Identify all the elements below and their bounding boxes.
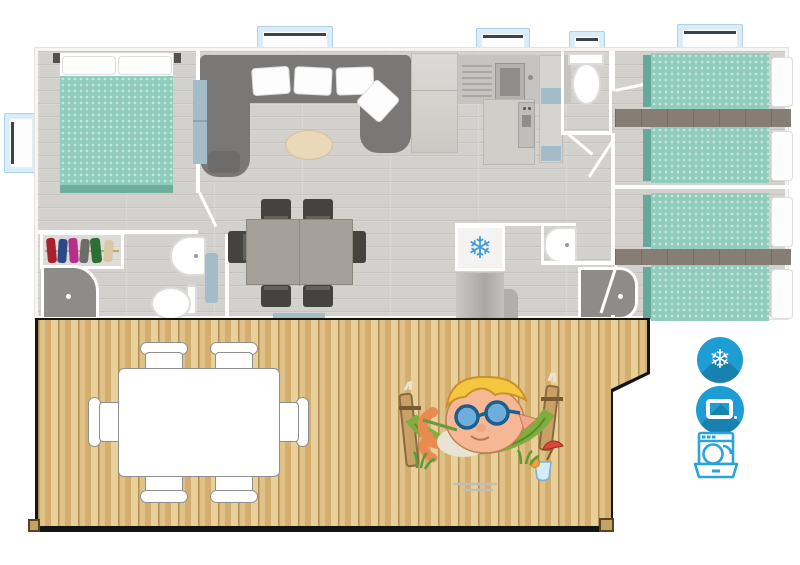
door-leaf-twin1	[615, 83, 645, 92]
toilet-wc	[572, 63, 601, 105]
dishwasher-icon	[690, 430, 742, 480]
shower-drain	[618, 294, 623, 299]
oven	[518, 102, 535, 148]
fridge: ❄	[455, 225, 505, 271]
oven-knob	[528, 107, 531, 110]
shower-drain	[66, 294, 71, 299]
floor-strip	[615, 109, 791, 127]
window-master-bedroom	[4, 113, 36, 173]
pillow	[771, 197, 793, 247]
deck-table	[118, 368, 280, 477]
floorplan-screenshot: ❄	[0, 0, 800, 565]
clothes-item	[46, 238, 57, 264]
pillow	[771, 269, 793, 319]
kitchen-tall-cabinet	[411, 53, 458, 153]
cabinet-divider	[193, 120, 207, 122]
floor-strip	[615, 249, 791, 265]
washbasin-master	[170, 236, 206, 276]
snowflake-icon: ❄	[697, 337, 743, 383]
bed-foot	[643, 195, 651, 247]
clothes-item	[79, 239, 90, 264]
table-seam	[299, 220, 300, 286]
utility-side	[504, 289, 518, 320]
single-bed-3	[643, 193, 791, 249]
cabinet-accent	[541, 146, 561, 161]
faucet	[565, 243, 569, 247]
ottoman	[208, 151, 240, 173]
sofa-pillow	[293, 66, 332, 96]
clothes-item	[57, 239, 68, 264]
double-bed-foot-edge	[60, 185, 173, 193]
wall-segment	[611, 185, 791, 189]
sink-basin	[500, 68, 520, 96]
bedside-left	[53, 53, 60, 63]
wall-segment	[611, 51, 615, 91]
single-bed-1	[643, 53, 791, 109]
kitchen-island	[483, 99, 535, 165]
washbasin-central	[544, 227, 577, 263]
sink-drainboard	[462, 63, 492, 97]
deck-chair-back	[210, 490, 258, 503]
dining-chair	[261, 285, 291, 307]
bed-cover	[651, 53, 769, 109]
bed-cover	[651, 265, 769, 321]
fridge-snowflake-icon: ❄	[467, 231, 492, 266]
dining-chair	[228, 231, 248, 263]
single-bed-2	[643, 127, 791, 183]
bed-cover	[651, 127, 769, 183]
utility-cabinet	[456, 273, 504, 320]
air-conditioning-badge: ❄	[697, 337, 743, 383]
floorplan: ❄	[35, 48, 788, 319]
dining-chair	[261, 199, 291, 221]
faucet	[528, 75, 533, 80]
dining-table	[246, 219, 353, 285]
single-bed-4	[643, 265, 791, 321]
window-frame-bar	[11, 122, 14, 164]
shower-master	[41, 265, 99, 320]
mascot-illustration	[383, 368, 579, 502]
dining-chair	[303, 199, 333, 221]
tv-cabinet	[193, 80, 207, 164]
window-frame-bar	[576, 38, 598, 41]
bed-foot	[643, 55, 651, 107]
bathroom-cabinet	[205, 253, 218, 303]
pillow	[771, 57, 793, 107]
bed-foot	[643, 129, 651, 181]
toilet-master	[151, 287, 191, 320]
deck-post	[28, 519, 40, 532]
kitchen-sink	[495, 63, 525, 101]
television-badge	[696, 386, 744, 434]
deck-post	[599, 518, 614, 532]
coffee-table	[285, 130, 333, 160]
double-bed	[60, 76, 173, 193]
pillow	[771, 131, 793, 181]
clothes-item	[68, 238, 79, 264]
wardrobe	[40, 232, 124, 269]
deck-chair-back	[140, 490, 188, 503]
kitchen-side-cabinet	[539, 55, 563, 163]
dining-chair	[303, 285, 333, 307]
sofa-pillow	[251, 66, 291, 97]
pillow	[62, 56, 116, 75]
clothes-item	[90, 238, 103, 264]
bed-cover	[651, 193, 769, 249]
double-bed-pillow-area	[60, 53, 173, 76]
cabinet-divider	[412, 90, 457, 91]
deck-chair-seat	[277, 402, 299, 442]
window-frame-bar	[483, 35, 523, 38]
oven-knob	[523, 107, 526, 110]
faucet	[194, 254, 198, 258]
door-leaf-wc	[567, 133, 593, 156]
tv-button-dot	[734, 416, 737, 419]
oven-window	[522, 115, 531, 127]
door-leaf-master	[198, 192, 217, 227]
bed-foot	[643, 267, 651, 319]
window-frame-bar	[264, 33, 326, 36]
bedside-right	[174, 53, 181, 63]
cabinet-accent	[541, 88, 561, 104]
wall-segment	[561, 51, 564, 135]
window-frame-bar	[684, 31, 736, 34]
tv-icon	[706, 399, 733, 419]
clothes-item	[103, 240, 114, 263]
pillow	[118, 56, 172, 75]
